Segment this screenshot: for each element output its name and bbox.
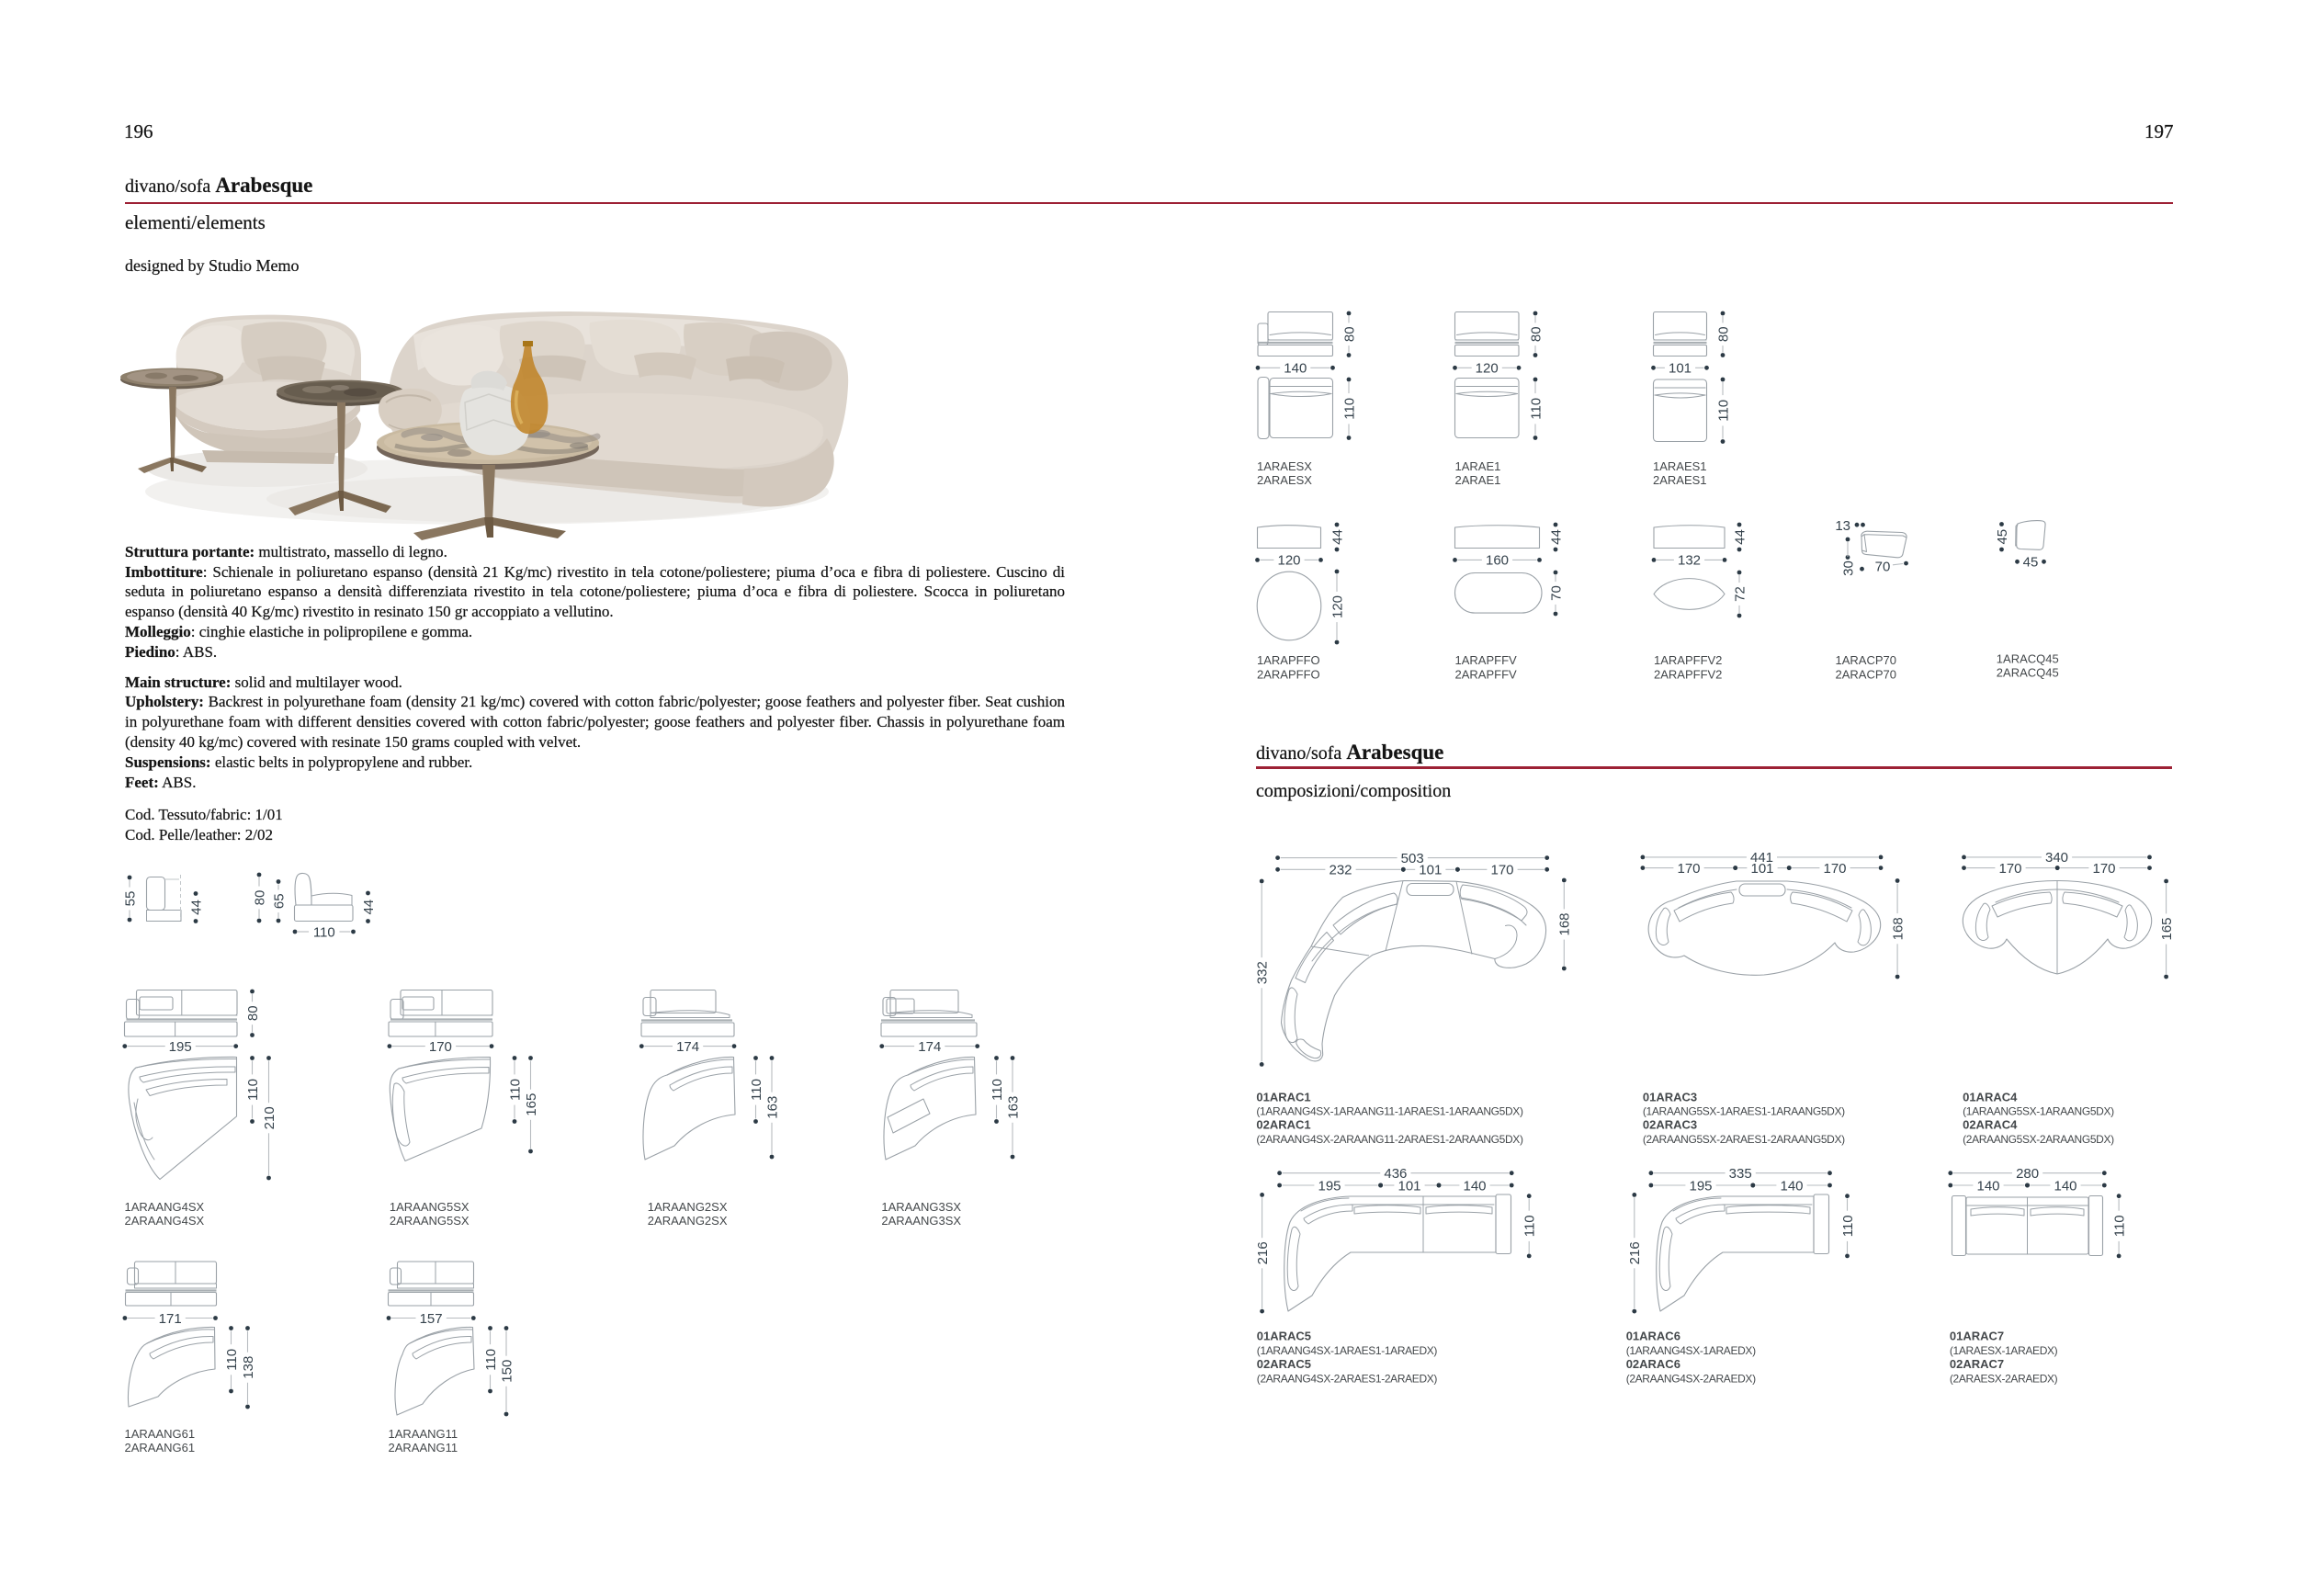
svg-text:(1ARAANG4SX-1ARAES1-1ARAEDX): (1ARAANG4SX-1ARAES1-1ARAEDX) xyxy=(1257,1344,1438,1357)
svg-text:44: 44 xyxy=(1732,529,1748,545)
svg-text:2ARAE1: 2ARAE1 xyxy=(1455,473,1501,487)
svg-text:(2ARAESX-2ARAEDX): (2ARAESX-2ARAEDX) xyxy=(1950,1372,2058,1385)
svg-text:101: 101 xyxy=(1397,1178,1420,1194)
svg-text:174: 174 xyxy=(918,1039,941,1055)
svg-text:120: 120 xyxy=(1330,595,1345,618)
svg-text:170: 170 xyxy=(1823,861,1846,877)
svg-text:165: 165 xyxy=(524,1093,539,1116)
svg-text:1ARAANG4SX: 1ARAANG4SX xyxy=(125,1200,205,1214)
svg-text:150: 150 xyxy=(499,1360,515,1383)
svg-text:1ARACQ45: 1ARACQ45 xyxy=(1997,651,2059,665)
svg-text:65: 65 xyxy=(271,893,287,909)
svg-text:55: 55 xyxy=(122,891,138,907)
svg-text:1ARAESX: 1ARAESX xyxy=(1257,459,1312,473)
svg-text:2ARAANG5SX: 2ARAANG5SX xyxy=(390,1214,470,1228)
svg-text:72: 72 xyxy=(1732,586,1748,602)
svg-text:163: 163 xyxy=(1005,1096,1021,1119)
svg-text:02ARAC7: 02ARAC7 xyxy=(1950,1357,2004,1371)
svg-text:163: 163 xyxy=(764,1096,780,1119)
svg-text:44: 44 xyxy=(1330,529,1345,545)
svg-text:45: 45 xyxy=(1995,529,2010,545)
svg-text:2ARAPFFO: 2ARAPFFO xyxy=(1257,667,1320,681)
svg-text:140: 140 xyxy=(1976,1178,1999,1194)
svg-text:1ARAANG5SX: 1ARAANG5SX xyxy=(390,1200,470,1214)
svg-text:2ARACP70: 2ARACP70 xyxy=(1836,667,1896,681)
svg-text:1ARAANG3SX: 1ARAANG3SX xyxy=(881,1200,961,1214)
svg-text:01ARAC1: 01ARAC1 xyxy=(1256,1090,1310,1104)
svg-text:1ARAANG61: 1ARAANG61 xyxy=(125,1427,196,1441)
svg-text:2ARAANG2SX: 2ARAANG2SX xyxy=(648,1214,728,1228)
svg-text:110: 110 xyxy=(1840,1215,1856,1237)
svg-text:171: 171 xyxy=(159,1311,182,1327)
svg-text:120: 120 xyxy=(1277,553,1300,569)
svg-text:(1ARAESX-1ARAEDX): (1ARAESX-1ARAEDX) xyxy=(1950,1344,2058,1357)
svg-text:01ARAC3: 01ARAC3 xyxy=(1643,1090,1697,1104)
svg-text:195: 195 xyxy=(169,1039,192,1055)
svg-text:168: 168 xyxy=(1890,917,1906,940)
svg-text:80: 80 xyxy=(245,1005,261,1021)
svg-text:44: 44 xyxy=(1548,529,1564,545)
svg-text:170: 170 xyxy=(429,1039,452,1055)
svg-text:70: 70 xyxy=(1875,560,1891,575)
svg-text:170: 170 xyxy=(1998,861,2021,877)
svg-text:2ARAANG4SX: 2ARAANG4SX xyxy=(125,1214,205,1228)
svg-text:30: 30 xyxy=(1840,560,1856,576)
svg-text:120: 120 xyxy=(1476,361,1499,377)
svg-text:165: 165 xyxy=(2159,917,2175,940)
svg-text:1ARAE1: 1ARAE1 xyxy=(1455,459,1501,473)
svg-text:2ARAES1: 2ARAES1 xyxy=(1653,473,1707,487)
svg-text:110: 110 xyxy=(245,1079,261,1101)
svg-text:45: 45 xyxy=(2023,555,2039,571)
svg-text:216: 216 xyxy=(1627,1241,1643,1264)
svg-text:132: 132 xyxy=(1678,553,1701,569)
svg-text:01ARAC6: 01ARAC6 xyxy=(1626,1330,1680,1343)
svg-text:(1ARAANG4SX-1ARAANG11-1ARAES1-: (1ARAANG4SX-1ARAANG11-1ARAES1-1ARAANG5DX… xyxy=(1256,1105,1523,1118)
svg-text:1ARAANG11: 1ARAANG11 xyxy=(389,1427,458,1441)
svg-text:340: 340 xyxy=(2045,850,2068,866)
svg-text:(2ARAANG4SX-2ARAES1-2ARAEDX): (2ARAANG4SX-2ARAES1-2ARAEDX) xyxy=(1257,1372,1438,1385)
svg-text:(2ARAANG5SX-2ARAANG5DX): (2ARAANG5SX-2ARAANG5DX) xyxy=(1963,1133,2114,1146)
svg-text:80: 80 xyxy=(1715,326,1731,342)
svg-text:02ARAC5: 02ARAC5 xyxy=(1257,1357,1311,1371)
svg-text:01ARAC5: 01ARAC5 xyxy=(1257,1330,1311,1343)
svg-text:1ARAES1: 1ARAES1 xyxy=(1653,459,1707,473)
svg-text:168: 168 xyxy=(1557,912,1573,935)
svg-text:110: 110 xyxy=(483,1349,499,1371)
svg-text:195: 195 xyxy=(1318,1178,1341,1194)
svg-text:101: 101 xyxy=(1419,863,1442,878)
svg-text:160: 160 xyxy=(1486,553,1509,569)
svg-text:210: 210 xyxy=(262,1106,277,1129)
svg-text:80: 80 xyxy=(252,890,267,906)
svg-text:110: 110 xyxy=(1522,1215,1538,1237)
svg-text:13: 13 xyxy=(1835,518,1850,534)
svg-text:110: 110 xyxy=(1528,398,1544,420)
svg-text:01ARAC4: 01ARAC4 xyxy=(1963,1090,2018,1104)
svg-text:02ARAC6: 02ARAC6 xyxy=(1626,1357,1680,1371)
svg-text:138: 138 xyxy=(241,1356,256,1379)
svg-text:2ARAPFFV: 2ARAPFFV xyxy=(1455,667,1518,681)
svg-text:110: 110 xyxy=(507,1079,523,1101)
svg-text:335: 335 xyxy=(1729,1166,1752,1182)
svg-text:170: 170 xyxy=(1490,863,1513,878)
svg-text:110: 110 xyxy=(1341,398,1357,420)
svg-text:332: 332 xyxy=(1255,961,1271,984)
svg-text:80: 80 xyxy=(1341,326,1357,342)
svg-text:1ARAPFFO: 1ARAPFFO xyxy=(1257,653,1320,667)
svg-text:1ARACP70: 1ARACP70 xyxy=(1836,653,1896,667)
svg-text:110: 110 xyxy=(749,1079,764,1101)
svg-text:232: 232 xyxy=(1329,863,1352,878)
svg-text:(1ARAANG5SX-1ARAANG5DX): (1ARAANG5SX-1ARAANG5DX) xyxy=(1963,1105,2114,1118)
svg-text:110: 110 xyxy=(313,924,335,940)
svg-text:80: 80 xyxy=(1528,326,1544,342)
svg-text:280: 280 xyxy=(2016,1166,2039,1182)
svg-text:195: 195 xyxy=(1689,1178,1712,1194)
svg-text:140: 140 xyxy=(1284,361,1307,377)
svg-text:2ARAANG11: 2ARAANG11 xyxy=(389,1441,458,1455)
svg-text:110: 110 xyxy=(2111,1215,2127,1237)
svg-text:110: 110 xyxy=(224,1349,240,1371)
svg-text:110: 110 xyxy=(990,1079,1005,1101)
svg-text:44: 44 xyxy=(188,900,204,915)
svg-text:01ARAC7: 01ARAC7 xyxy=(1950,1330,2004,1343)
svg-text:1ARAPFFV: 1ARAPFFV xyxy=(1455,653,1518,667)
svg-text:(2ARAANG5SX-2ARAES1-2ARAANG5DX: (2ARAANG5SX-2ARAES1-2ARAANG5DX) xyxy=(1643,1133,1845,1146)
svg-text:174: 174 xyxy=(676,1039,699,1055)
svg-text:216: 216 xyxy=(1255,1241,1271,1264)
svg-text:02ARAC3: 02ARAC3 xyxy=(1643,1118,1697,1132)
svg-text:(1ARAANG4SX-1ARAEDX): (1ARAANG4SX-1ARAEDX) xyxy=(1626,1344,1756,1357)
svg-text:101: 101 xyxy=(1669,361,1692,377)
svg-text:02ARAC4: 02ARAC4 xyxy=(1963,1118,2018,1132)
svg-text:101: 101 xyxy=(1750,861,1773,877)
svg-text:140: 140 xyxy=(1463,1178,1486,1194)
svg-text:140: 140 xyxy=(1780,1178,1803,1194)
svg-text:157: 157 xyxy=(420,1311,443,1327)
svg-text:2ARAANG61: 2ARAANG61 xyxy=(125,1441,196,1455)
svg-text:140: 140 xyxy=(2054,1178,2076,1194)
svg-text:(2ARAANG4SX-2ARAEDX): (2ARAANG4SX-2ARAEDX) xyxy=(1626,1372,1756,1385)
svg-text:110: 110 xyxy=(1715,400,1731,422)
svg-text:1ARAANG2SX: 1ARAANG2SX xyxy=(648,1200,728,1214)
svg-text:2ARAPFFV2: 2ARAPFFV2 xyxy=(1654,667,1722,681)
svg-text:(1ARAANG5SX-1ARAES1-1ARAANG5DX: (1ARAANG5SX-1ARAES1-1ARAANG5DX) xyxy=(1643,1105,1845,1118)
svg-text:170: 170 xyxy=(1677,861,1700,877)
svg-text:2ARACQ45: 2ARACQ45 xyxy=(1997,666,2059,680)
svg-text:44: 44 xyxy=(361,900,377,915)
svg-text:70: 70 xyxy=(1548,585,1564,601)
svg-text:02ARAC1: 02ARAC1 xyxy=(1256,1118,1310,1132)
svg-text:2ARAESX: 2ARAESX xyxy=(1257,473,1312,487)
svg-text:1ARAPFFV2: 1ARAPFFV2 xyxy=(1654,653,1722,667)
svg-text:2ARAANG3SX: 2ARAANG3SX xyxy=(881,1214,961,1228)
svg-text:(2ARAANG4SX-2ARAANG11-2ARAES1-: (2ARAANG4SX-2ARAANG11-2ARAES1-2ARAANG5DX… xyxy=(1256,1133,1523,1146)
svg-text:170: 170 xyxy=(2092,861,2115,877)
